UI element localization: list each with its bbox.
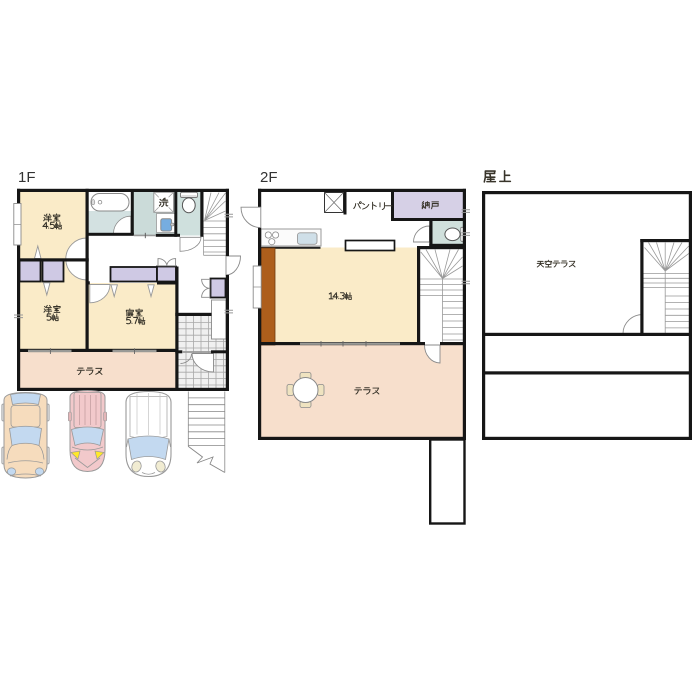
svg-text:2F: 2F [260,169,278,186]
svg-text:1F: 1F [18,169,36,186]
